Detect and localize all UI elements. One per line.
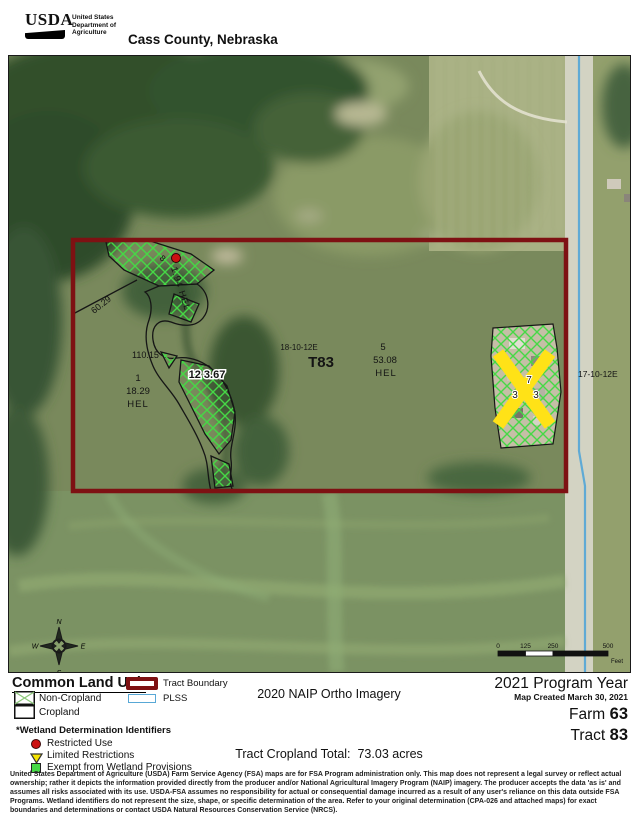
legend-cropland-swatch [14, 705, 35, 724]
label-field1-hel: HEL [127, 399, 148, 410]
scale-tick-250: 250 [548, 643, 559, 650]
scale-unit: Feet [611, 659, 623, 665]
usda-logo-swoosh [25, 30, 65, 39]
restricted-use-icon [31, 739, 41, 749]
label-field1-acres: 18.29 [126, 386, 150, 397]
label-field5-hel: HEL [375, 368, 396, 379]
disclaimer-line-5: boundaries and determinations or contact… [10, 806, 634, 815]
page-title: Cass County, Nebraska [128, 32, 278, 47]
label-section-left: 18-10-12E [280, 343, 317, 352]
label-field7-acres-left: 3 [512, 390, 518, 401]
fsa-map-page: USDA United States Department of Agricul… [0, 0, 638, 825]
label-field1-num: 1 [135, 373, 140, 384]
compass-e: E [81, 644, 86, 651]
legend-plss-swatch [128, 694, 156, 703]
farm-value: 63 [610, 705, 628, 723]
label-field7-acres-right: 3 [533, 390, 539, 401]
disclaimer-line-2: ownership; rather it depicts the informa… [10, 779, 634, 788]
label-field7-num: 7 [526, 375, 532, 386]
legend-tract-boundary-swatch [126, 677, 158, 690]
legend-non-cropland-label: Non-Cropland [39, 693, 101, 704]
disclaimer-line-1: United States Department of Agriculture … [10, 770, 634, 779]
usda-logo-text: USDA [25, 10, 73, 30]
tract-cropland-total-label: Tract Cropland Total: [235, 747, 350, 761]
agency-line-2: Department of [72, 22, 116, 30]
disclaimer: United States Department of Agriculture … [10, 770, 634, 815]
label-section-right: 17-10-12E [578, 369, 618, 379]
compass-s: S [57, 670, 62, 672]
disclaimer-line-3: assumes all risks associated with its us… [10, 788, 634, 797]
scale-tick-500: 500 [603, 643, 614, 650]
restricted-use-marker [172, 254, 181, 263]
legend-wetland-title: *Wetland Determination Identifiers [16, 725, 171, 736]
scale-tick-125: 125 [520, 643, 531, 650]
disclaimer-line-4: Programs. Wetland identifiers do not rep… [10, 797, 634, 806]
legend-limited-label: Limited Restrictions [47, 750, 134, 761]
legend-tract-boundary-label: Tract Boundary [163, 678, 228, 689]
tract-cropland-total: Tract Cropland Total: 73.03 acres [169, 747, 489, 761]
scale-tick-0: 0 [496, 643, 500, 650]
map-canvas: 60.29 8 1.94 HEL 110.15 12 3.67 1 18.29 … [8, 55, 631, 673]
legend-restricted-label: Restricted Use [47, 738, 113, 749]
farm-number: Farm 63 [408, 705, 628, 724]
usda-agency-text: United States Department of Agriculture [72, 14, 116, 37]
legend-cropland-label: Cropland [39, 707, 80, 718]
agency-line-1: United States [72, 14, 116, 22]
label-township: T83 [308, 354, 334, 371]
usda-logo: USDA [25, 10, 73, 39]
tract-cropland-total-value: 73.03 acres [357, 747, 422, 761]
agency-line-3: Agriculture [72, 29, 116, 37]
label-field12: 12 3.67 [189, 369, 226, 381]
farm-label: Farm [569, 706, 605, 723]
map-created-date: Map Created March 30, 2021 [408, 692, 628, 702]
tract-number: Tract 83 [408, 726, 628, 745]
label-field5-acres: 53.08 [373, 355, 397, 366]
label-boundary-110: 110.15 [132, 350, 159, 360]
tract-label: Tract [570, 727, 605, 744]
imagery-source: 2020 NAIP Ortho Imagery [219, 687, 439, 701]
legend-plss-label: PLSS [163, 693, 187, 704]
tract-value: 83 [610, 726, 628, 744]
program-year: 2021 Program Year [408, 675, 628, 693]
aerial-map: 60.29 8 1.94 HEL 110.15 12 3.67 1 18.29 … [9, 56, 630, 672]
label-field5-num: 5 [380, 342, 385, 353]
